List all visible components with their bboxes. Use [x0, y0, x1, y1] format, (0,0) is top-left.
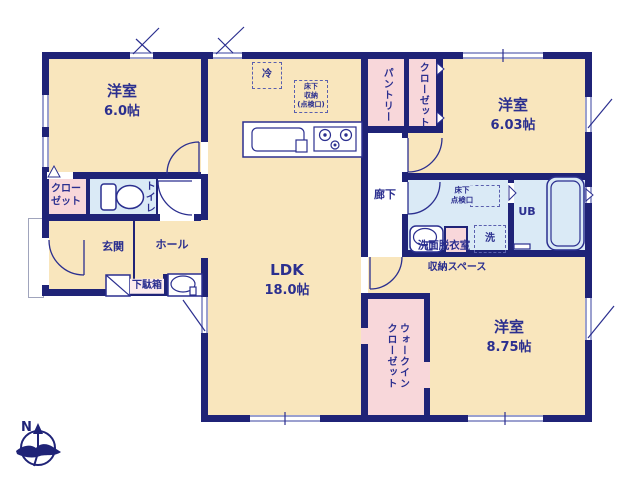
bedroom2-label: 洋室 6.03帖: [490, 96, 535, 134]
shoebox-label: 下駄箱: [130, 279, 164, 294]
window-swing-mark-3: [588, 99, 612, 128]
underfloor-storage-label: 床下 収納 (点検口): [297, 82, 324, 109]
bedroom3-size: 8.75帖: [486, 340, 531, 355]
window-swing-mark-1: [133, 28, 159, 54]
underfloor-hatch-label: 床下 点検口: [451, 185, 474, 205]
bedroom3-name: 洋室: [494, 318, 524, 336]
wic-line1: ウォークイン: [396, 300, 409, 412]
door-arc-entrance: [49, 240, 84, 275]
kitchen-counter-icon: [243, 122, 362, 157]
closet2-door-mark-2: [437, 112, 444, 124]
washroom-label: 洗面脱衣室: [418, 239, 471, 252]
hall-basin-icon: [168, 274, 202, 296]
bath-window-mark: [586, 189, 593, 201]
bedroom3-label: 洋室 8.75帖: [486, 318, 531, 356]
bedroom2-name: 洋室: [498, 96, 528, 114]
corridor-label: 廊下: [374, 188, 396, 202]
door-arc-bedroom1: [167, 142, 199, 174]
closet1-label: クロー ゼット: [51, 184, 81, 209]
window-swing-mark-5: [183, 300, 205, 331]
symbol-overlay: N: [0, 0, 640, 480]
window-swing-mark-4: [588, 306, 614, 338]
ldk-size: 18.0帖: [264, 283, 309, 298]
genkan-label: 玄関: [102, 240, 124, 254]
bedroom1-size: 6.0帖: [104, 104, 140, 119]
wic-line2: クローゼット: [384, 300, 397, 412]
door-arc-bedroom3: [370, 257, 402, 289]
fridge-label: 冷: [262, 69, 272, 82]
bath-door-mark: [509, 186, 516, 200]
compass-north-label: N: [21, 420, 32, 435]
underfloor-hatch-line1: 床下: [455, 185, 470, 194]
closet2-label: クローゼット: [416, 62, 429, 128]
pantry-label: パントリー: [380, 68, 393, 123]
compass-icon: N: [16, 420, 61, 466]
door-arc-bedroom2: [408, 138, 442, 172]
underfloor-storage-line3: (点検口): [297, 101, 324, 109]
bedroom2-size: 6.03帖: [490, 118, 535, 133]
closet1-door-mark: [48, 166, 60, 177]
shoebox-icon: [106, 275, 130, 296]
ldk-name: LDK: [270, 261, 304, 279]
wic-label: ウォークイン クローゼット: [384, 300, 409, 412]
bedroom1-name: 洋室: [107, 82, 137, 100]
floor-plan: N 洋室 6.0帖 洋室 6.03帖 洋室 8.75帖 LDK 18.0帖 クロ…: [0, 0, 640, 480]
underfloor-storage-line1: 床下: [304, 82, 318, 90]
bedroom1-label: 洋室 6.0帖: [104, 82, 140, 120]
closet1-line2: ゼット: [51, 196, 81, 207]
underfloor-hatch-line2: 点検口: [451, 195, 474, 204]
laundry-label: 洗: [485, 233, 495, 246]
door-arc-toilet: [158, 181, 192, 215]
underfloor-storage-line2: 収納: [304, 91, 318, 99]
door-arc-washroom: [408, 182, 440, 214]
toilet-icon: [101, 184, 144, 210]
closet2-door-mark-1: [437, 63, 444, 75]
storage-space-label: 収納スペース: [428, 262, 487, 275]
window-swing-mark-2: [216, 27, 244, 54]
bath-label: UB: [518, 205, 535, 219]
hall-label: ホール: [156, 238, 189, 252]
closet1-line1: クロー: [51, 184, 81, 195]
toilet-label: トイレ: [142, 181, 155, 214]
ldk-label: LDK 18.0帖: [264, 261, 309, 299]
